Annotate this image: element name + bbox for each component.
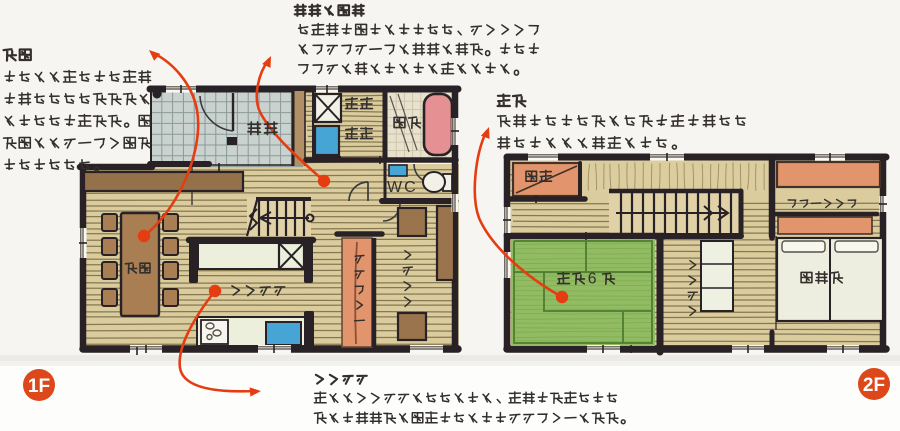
svg-text:1F: 1F <box>28 376 50 397</box>
svg-text:WC: WC <box>387 179 418 196</box>
svg-text:2F: 2F <box>863 375 885 396</box>
svg-text:6: 6 <box>588 270 597 287</box>
